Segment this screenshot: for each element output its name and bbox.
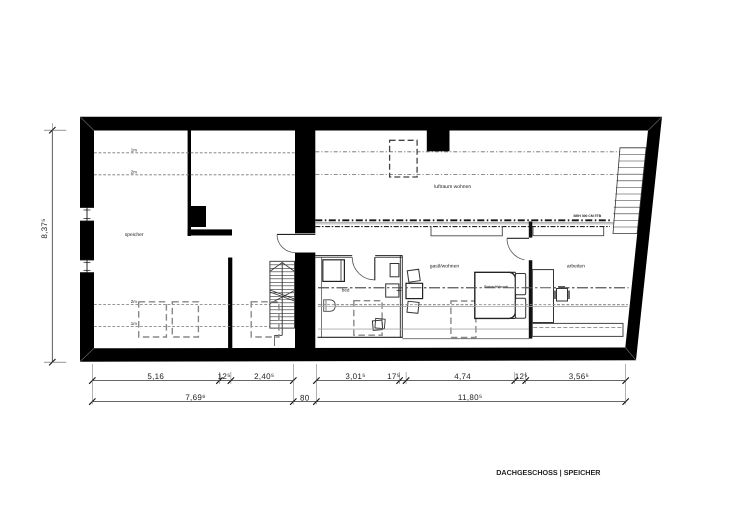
- svg-text:2m: 2m: [131, 299, 137, 304]
- svg-text:luftraum wohnen: luftraum wohnen: [434, 184, 471, 190]
- svg-text:12⁵: 12⁵: [515, 372, 528, 381]
- svg-text:8,37⁵: 8,37⁵: [40, 218, 49, 238]
- svg-text:2m: 2m: [131, 169, 137, 174]
- svg-text:7,69⁶: 7,69⁶: [185, 393, 205, 402]
- svg-text:17⁵: 17⁵: [387, 372, 400, 381]
- svg-text:BRH 300 CM FFB: BRH 300 CM FFB: [574, 214, 602, 218]
- svg-text:DACHGESCHOSS | SPEICHER: DACHGESCHOSS | SPEICHER: [496, 468, 601, 477]
- svg-text:1m: 1m: [131, 147, 137, 152]
- svg-text:bed: bed: [342, 288, 350, 293]
- svg-text:4,74: 4,74: [454, 372, 471, 381]
- svg-text:gastl/wohnen: gastl/wohnen: [430, 264, 460, 270]
- svg-text:2,40⁵: 2,40⁵: [254, 372, 274, 381]
- svg-text:arbeiten: arbeiten: [567, 264, 585, 270]
- svg-text:3,56⁵: 3,56⁵: [569, 372, 589, 381]
- svg-text:3,01⁵: 3,01⁵: [345, 372, 365, 381]
- svg-text:speicher: speicher: [125, 232, 144, 238]
- svg-text:11,80⁵: 11,80⁵: [458, 393, 483, 402]
- svg-text:12⁵: 12⁵: [218, 372, 231, 381]
- svg-text:1m: 1m: [131, 321, 137, 326]
- svg-text:80: 80: [300, 394, 310, 403]
- svg-text:5,16: 5,16: [147, 372, 164, 381]
